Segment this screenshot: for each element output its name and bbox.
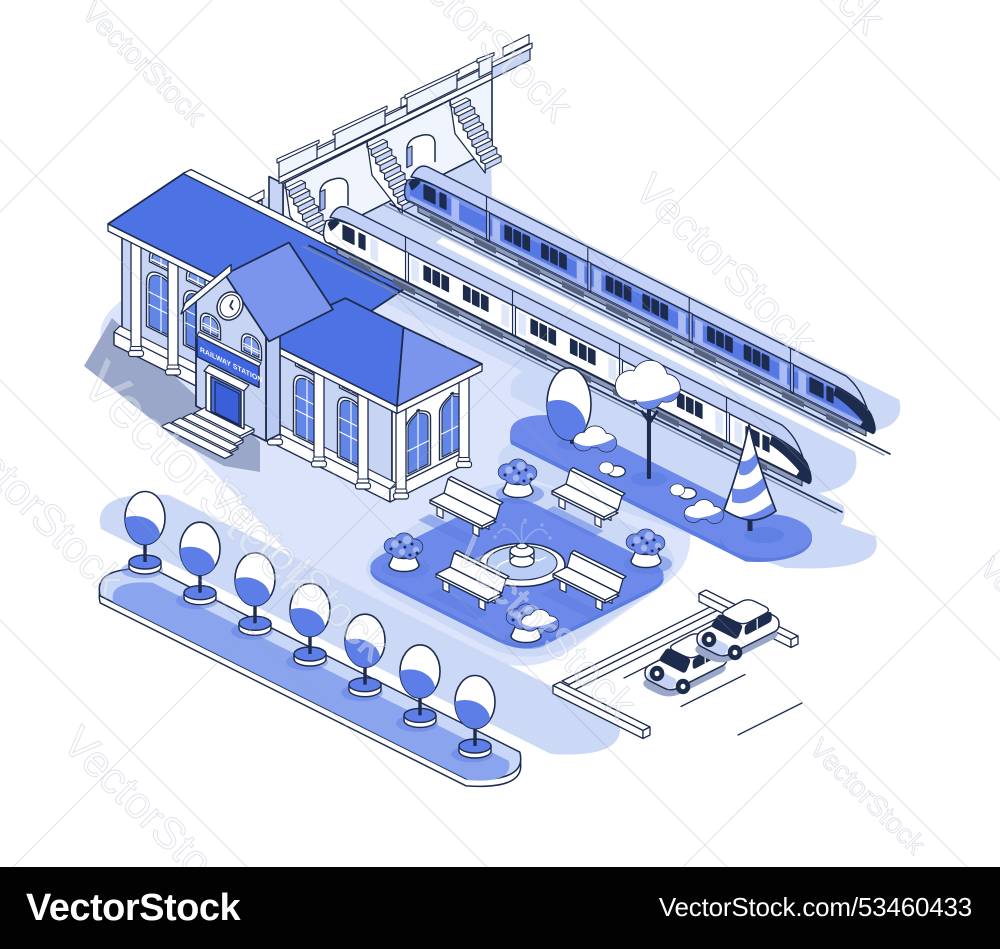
svg-text:VectorStock: VectorStock xyxy=(26,887,242,929)
svg-text:VectorStock.com/53460433: VectorStock.com/53460433 xyxy=(659,892,972,922)
